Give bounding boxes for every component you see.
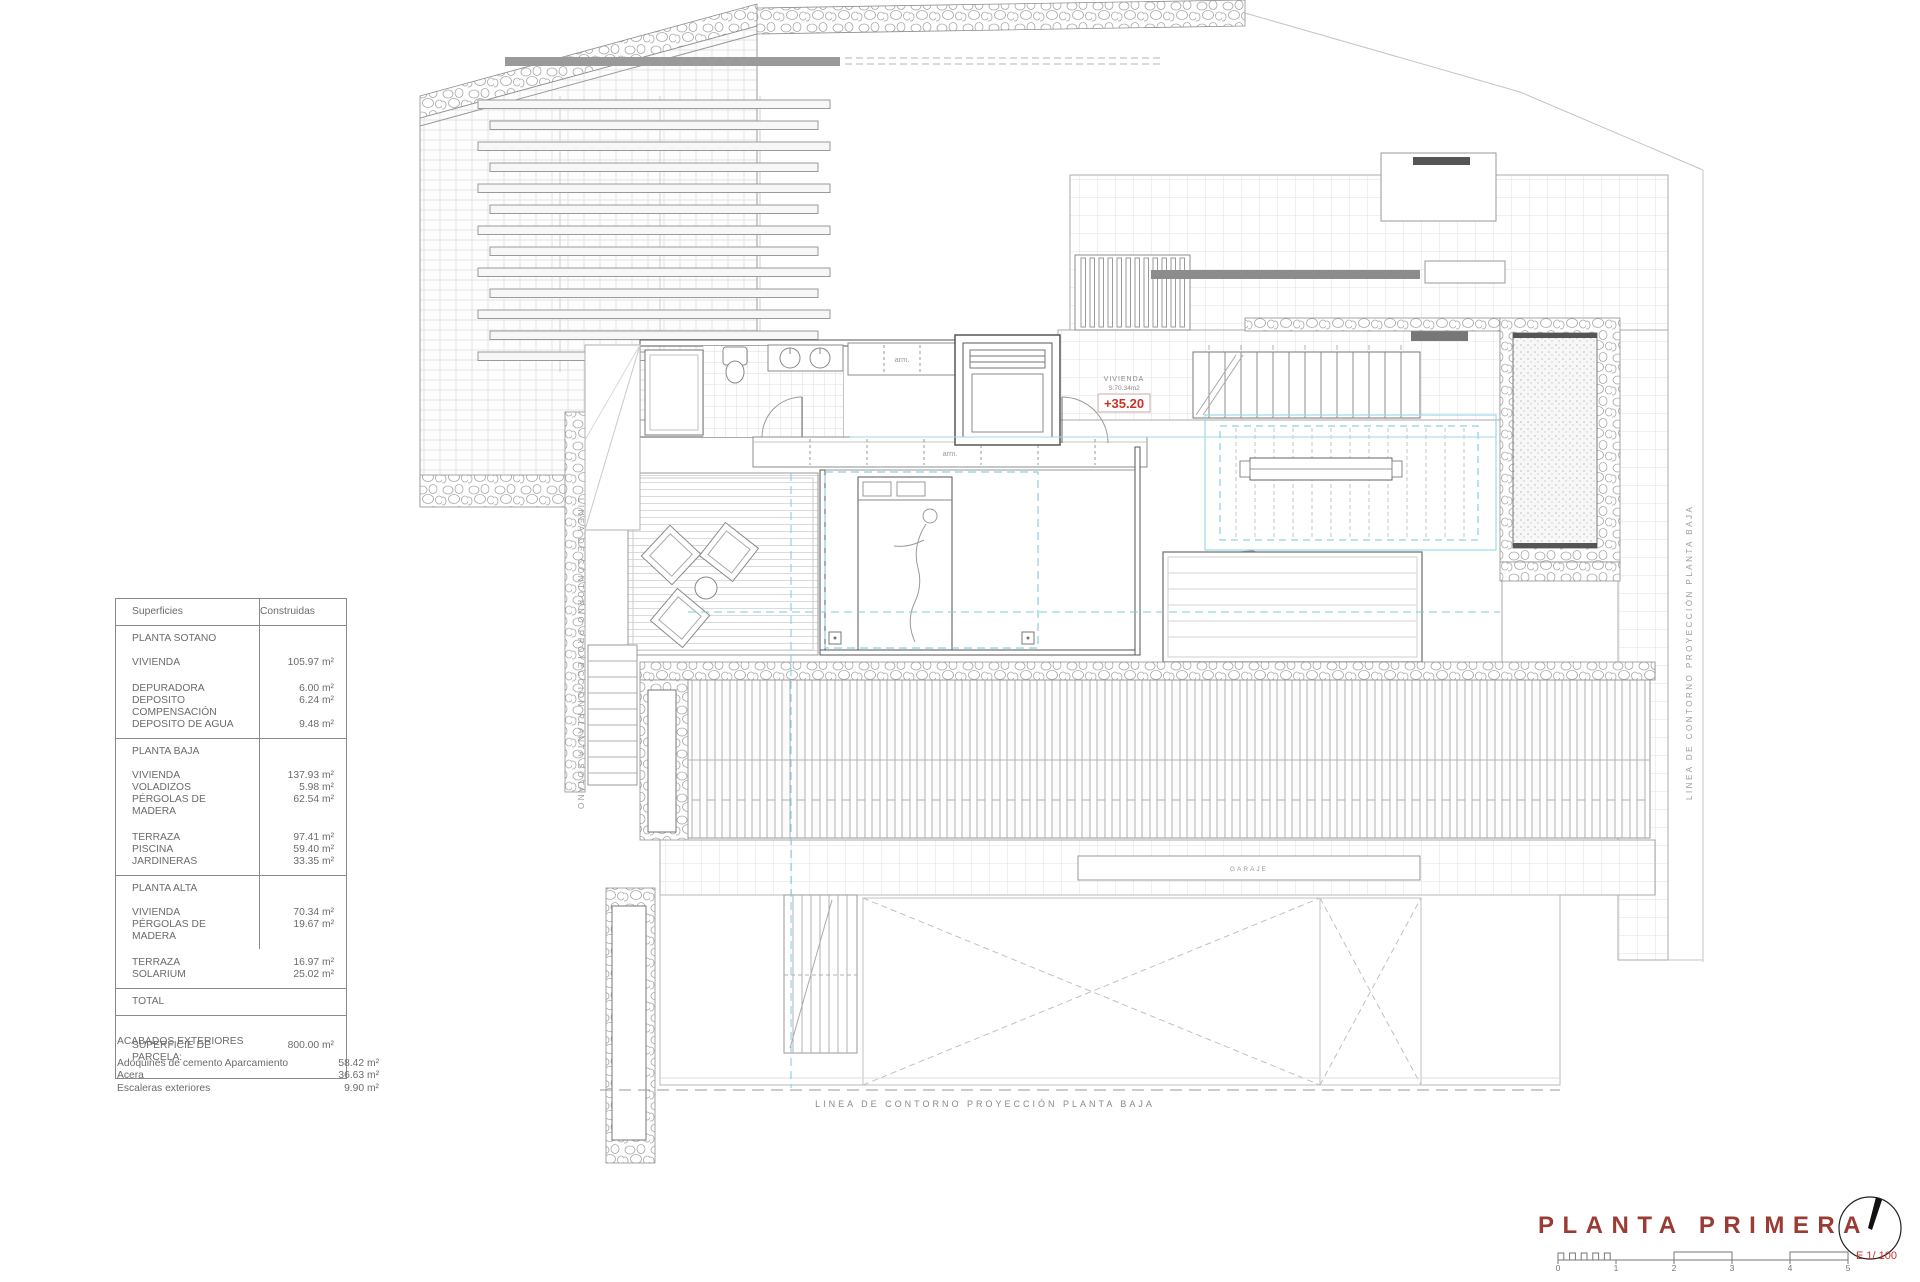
bedroom [820, 447, 1140, 655]
table-row: PÉRGOLAS DE MADERA19.67 m² [116, 919, 346, 943]
garage-notch: GARAJE [1078, 856, 1420, 880]
floorplan-sheet: arm. arm. [0, 0, 1920, 1280]
seating-terrace [628, 473, 818, 655]
bed [858, 477, 952, 650]
row-value: 19.67 m² [248, 919, 346, 943]
table-row: VOLADIZOS5.98 m² [116, 782, 346, 794]
row-label: VIVIENDA [116, 657, 248, 669]
table-section: TOTAL [116, 988, 346, 1015]
exterior-stair-left [588, 645, 637, 785]
scale-tick: 0 [1552, 1263, 1564, 1273]
row-label: PÉRGOLAS DE MADERA [116, 919, 248, 943]
table-row: TERRAZA97.41 m² [116, 832, 346, 844]
wardrobe2-label: arm. [943, 449, 958, 458]
acabados-row: Acera36.63 m² [117, 1070, 379, 1083]
row-value: 6.00 m² [248, 683, 346, 695]
wood-slat-deck [640, 662, 1655, 840]
dining-table [1240, 458, 1402, 480]
row-label: DEPOSITO COMPENSACIÓN [116, 695, 248, 719]
level-badge-room: VIVIENDA [1104, 376, 1145, 383]
row-value: 16.97 m² [248, 957, 346, 969]
entry-pergola [1075, 255, 1190, 330]
acabados-row: Escaleras exteriores9.90 m² [117, 1083, 379, 1096]
acabados-title: ACABADOS EXTERIORES [117, 1036, 379, 1049]
table-header: Superficies Construidas [116, 599, 346, 626]
row-label: DEPURADORA [116, 683, 248, 695]
scale-bar-profile [1550, 1246, 1880, 1264]
table-row: DEPOSITO COMPENSACIÓN6.24 m² [116, 695, 346, 719]
scale-bar: 012345 E 1/ 100 [1550, 1246, 1920, 1282]
row-value: 137.93 m² [248, 770, 346, 782]
level-badge-value: +35.20 [1104, 396, 1144, 411]
row-value: 58.42 m² [338, 1058, 379, 1071]
acabados-block: ACABADOS EXTERIORES Adoquines de cemento… [117, 1036, 379, 1095]
entry-stair-upper [585, 345, 640, 530]
garage-label: GARAJE [1230, 866, 1268, 873]
scale-label: E 1/ 100 [1856, 1250, 1897, 1262]
planter [648, 690, 676, 832]
retaining-beam [505, 57, 1160, 66]
row-label: TERRAZA [116, 957, 248, 969]
table-section-title: PLANTA ALTA [116, 883, 346, 895]
row-label: SOLARIUM [116, 969, 248, 981]
row-value: 33.35 m² [248, 856, 346, 868]
contour-left-label: LINEA DE CONTORNO PROYECCIÓN PLANTA SOTA… [576, 498, 585, 811]
table-row: TERRAZA16.97 m² [116, 957, 346, 969]
row-value: 5.98 m² [248, 782, 346, 794]
row-value: 97.41 m² [248, 832, 346, 844]
plank-deck [1163, 552, 1422, 662]
row-value: 70.34 m² [248, 907, 346, 919]
row-value: 9.48 m² [248, 719, 346, 731]
scale-tick: 5 [1842, 1263, 1854, 1273]
sink-counter [768, 345, 843, 371]
level-badge: VIVIENDA S:70.34m2 +35.20 [1098, 376, 1150, 412]
row-value: 25.02 m² [248, 969, 346, 981]
table-row: DEPURADORA6.00 m² [116, 683, 346, 695]
acabados-rows: Adoquines de cemento Aparcamiento58.42 m… [117, 1058, 379, 1096]
row-label: DEPOSITO DE AGUA [116, 719, 248, 731]
table-row: JARDINERAS33.35 m² [116, 856, 346, 868]
table-row: PÉRGOLAS DE MADERA62.54 m² [116, 794, 346, 818]
wardrobe-strip-2: arm. [753, 437, 1147, 467]
acabados-row: Adoquines de cemento Aparcamiento58.42 m… [117, 1058, 379, 1071]
contour-right-label: LINEA DE CONTORNO PROYECCIÓN PLANTA BAJA [1685, 505, 1694, 800]
row-label: VOLADIZOS [116, 782, 248, 794]
terrace-bench [1381, 153, 1496, 221]
table-section-title: TOTAL [116, 996, 346, 1008]
row-value: 6.24 m² [248, 695, 346, 719]
lower-floor-outline [606, 888, 1560, 1163]
table-header-superficies: Superficies [116, 606, 250, 618]
table-row: SOLARIUM25.02 m² [116, 969, 346, 981]
table-section: PLANTA SOTANOVIVIENDA105.97 m²DEPURADORA… [116, 626, 346, 738]
row-label: VIVIENDA [116, 770, 248, 782]
table-section-title: PLANTA BAJA [116, 746, 346, 758]
table-row: VIVIENDA105.97 m² [116, 657, 346, 669]
table-row: DEPOSITO DE AGUA9.48 m² [116, 719, 346, 731]
row-label: TERRAZA [116, 832, 248, 844]
row-label: PISCINA [116, 844, 248, 856]
stone-band-bottomleft [420, 475, 583, 507]
sheet-title: PLANTA PRIMERA [1538, 1212, 1869, 1240]
table-header-construidas: Construidas [250, 606, 346, 618]
contour-bottom-label: LINEA DE CONTORNO PROYECCIÓN PLANTA BAJA [815, 1099, 1155, 1109]
shower [645, 350, 703, 435]
bathroom [645, 345, 843, 437]
row-label: VIVIENDA [116, 907, 248, 919]
areas-table-body: PLANTA SOTANOVIVIENDA105.97 m²DEPURADORA… [116, 626, 346, 1078]
stone-column-left [606, 888, 655, 1163]
row-value: 59.40 m² [248, 844, 346, 856]
row-label: JARDINERAS [116, 856, 248, 868]
bench-bar [1411, 331, 1468, 341]
lower-stair [784, 895, 857, 1053]
row-label: PÉRGOLAS DE MADERA [116, 794, 248, 818]
scale-tick: 1 [1610, 1263, 1622, 1273]
row-label: Adoquines de cemento Aparcamiento [117, 1058, 338, 1071]
table-row: VIVIENDA70.34 m² [116, 907, 346, 919]
table-section: PLANTA ALTAVIVIENDA70.34 m²PÉRGOLAS DE M… [116, 875, 346, 988]
scale-tick: 2 [1668, 1263, 1680, 1273]
table-section: PLANTA BAJAVIVIENDA137.93 m²VOLADIZOS5.9… [116, 738, 346, 875]
level-badge-area: S:70.34m2 [1108, 385, 1140, 392]
areas-table: Superficies Construidas PLANTA SOTANOVIV… [115, 598, 347, 1079]
row-label: Escaleras exteriores [117, 1083, 344, 1096]
table-section-title: PLANTA SOTANO [116, 633, 346, 645]
scale-tick: 4 [1784, 1263, 1796, 1273]
scale-tick: 3 [1726, 1263, 1738, 1273]
row-value: 9.90 m² [344, 1083, 379, 1096]
wardrobe1-label: arm. [895, 355, 910, 364]
row-value: 105.97 m² [248, 657, 346, 669]
side-table [695, 577, 717, 599]
table-row: PISCINA59.40 m² [116, 844, 346, 856]
row-value: 36.63 m² [338, 1070, 379, 1083]
row-value: 62.54 m² [248, 794, 346, 818]
row-label: Acera [117, 1070, 338, 1083]
elevator [955, 335, 1060, 445]
table-row: VIVIENDA137.93 m² [116, 770, 346, 782]
wardrobe-strip-1: arm. [848, 343, 956, 375]
